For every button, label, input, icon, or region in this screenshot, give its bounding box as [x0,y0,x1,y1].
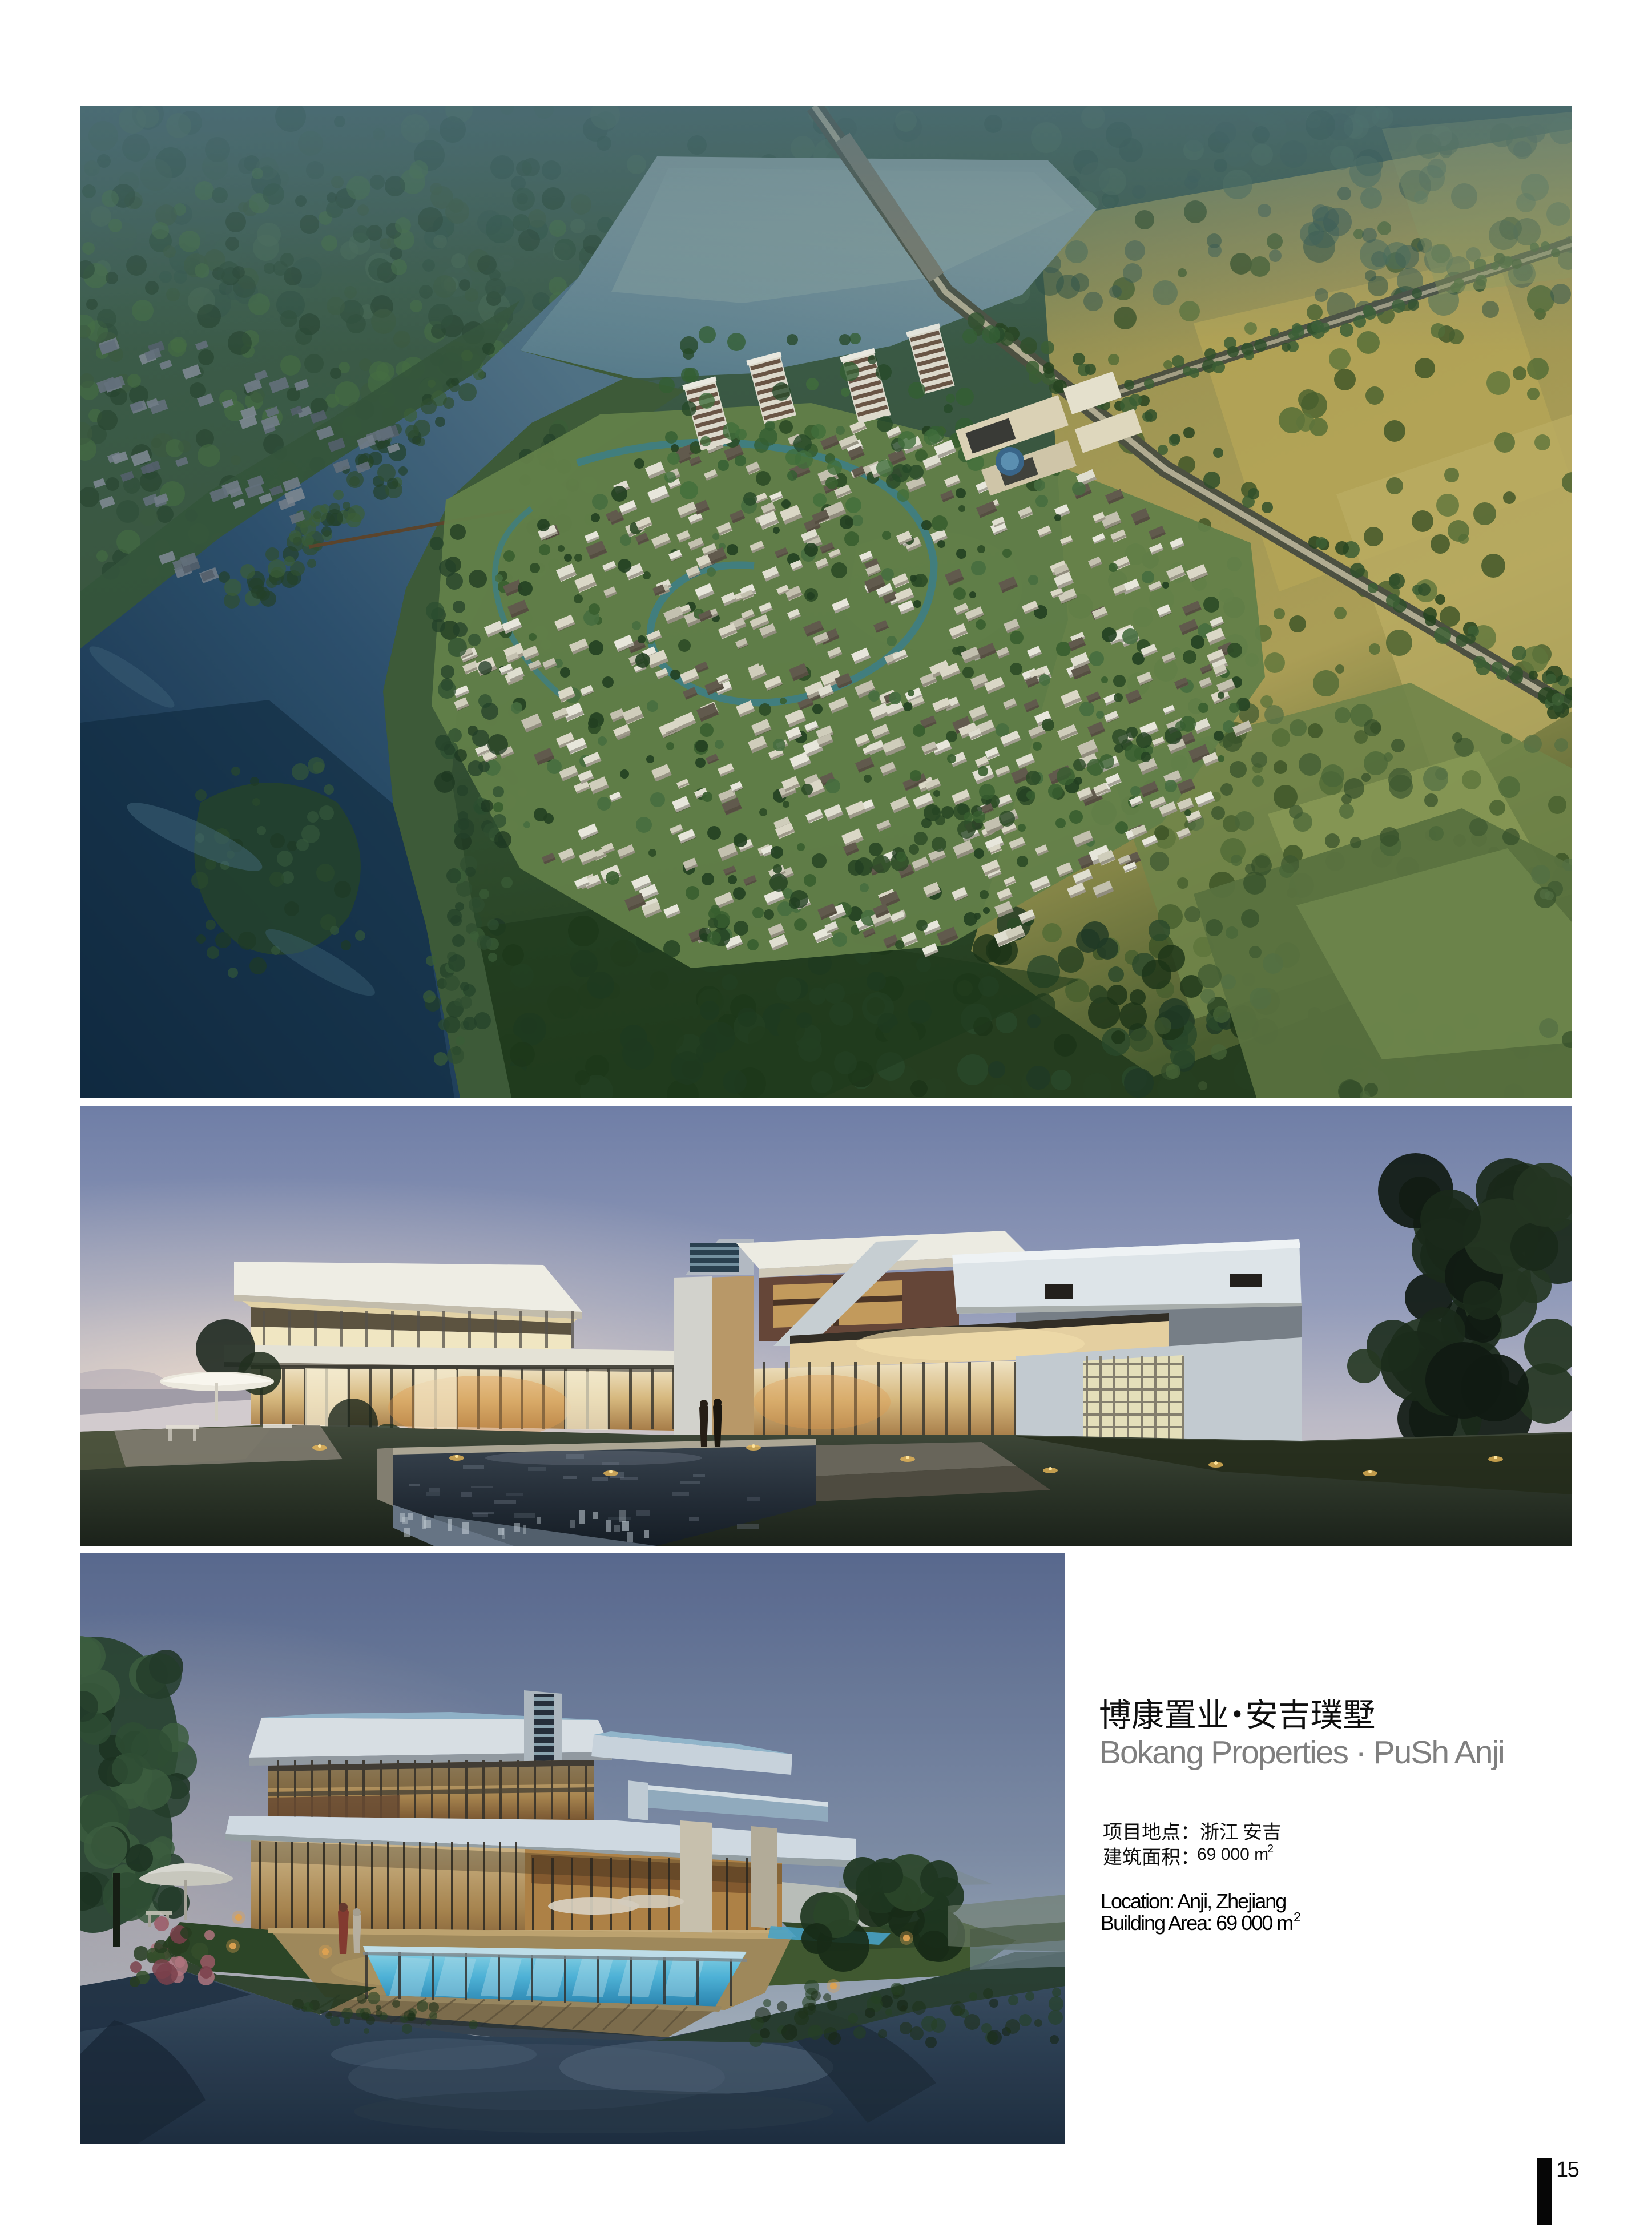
svg-text:2: 2 [1294,1909,1301,1924]
svg-text:Building Area: 69 000 m: Building Area: 69 000 m [1101,1911,1292,1935]
svg-text:Bokang Properties · PuSh Anji: Bokang Properties · PuSh Anji [1099,1734,1504,1771]
svg-text:15: 15 [1556,2159,1579,2182]
svg-text:2: 2 [1267,1843,1274,1855]
svg-text:69 000 m: 69 000 m [1197,1845,1268,1864]
svg-text:Location: Anji, Zhejiang: Location: Anji, Zhejiang [1101,1889,1286,1913]
